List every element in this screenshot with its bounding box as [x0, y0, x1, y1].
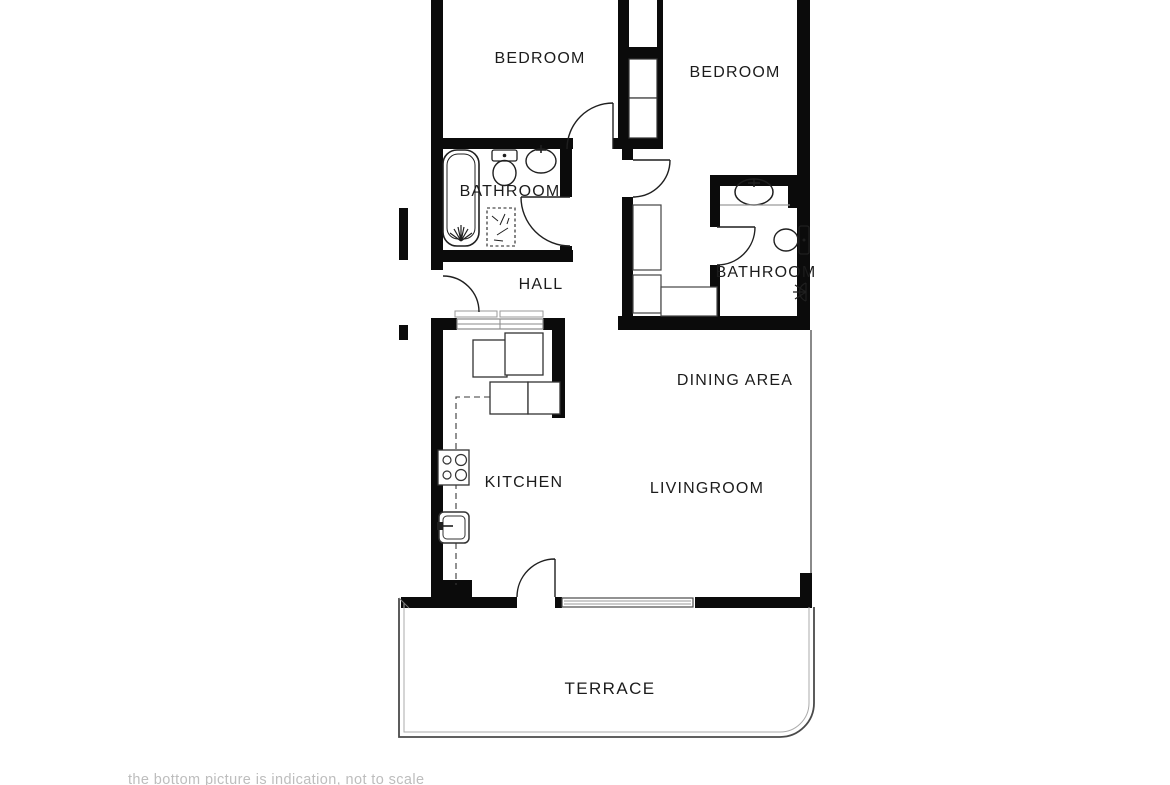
wall-bottom-kitchen — [401, 597, 517, 608]
hall-sill-left — [455, 311, 497, 317]
wall-outside-stub-1 — [399, 208, 408, 260]
kitchen-sink-inner — [443, 516, 465, 539]
floor-plan-screenshot: BEDROOM BEDROOM BATHROOM HALL BATHROOM D… — [0, 0, 1170, 785]
sliding-window-cap — [555, 597, 562, 608]
closet-box-3 — [661, 287, 717, 316]
wall-outside-stub-2 — [399, 325, 408, 340]
label-bathroom-main: BATHROOM — [460, 183, 561, 200]
kitchen-appliance-1 — [473, 340, 507, 377]
floor-plan-drawing: BEDROOM BEDROOM BATHROOM HALL BATHROOM D… — [0, 0, 1170, 785]
wall-bathroom1-bottom — [431, 250, 573, 262]
kitchen-appliance-2 — [505, 333, 543, 375]
wall-living-step — [800, 573, 812, 597]
window-cap-left — [453, 319, 457, 329]
wall-bathroom2-left-upper — [710, 175, 720, 227]
wall-bathroom2-top — [710, 175, 807, 186]
background — [0, 0, 1170, 785]
hall-sill-right — [500, 311, 543, 317]
label-hall: HALL — [519, 276, 564, 293]
wall-bedroom1-bathroom — [431, 138, 573, 149]
wall-bathroom1-right-upper — [560, 149, 572, 197]
wall-left-upper — [431, 0, 443, 270]
sliding-window — [562, 598, 693, 607]
label-bedroom-right: BEDROOM — [689, 64, 780, 81]
closet-box-1 — [633, 205, 661, 270]
wardrobe-shelf-1 — [629, 59, 657, 98]
toilet2-button — [803, 239, 806, 242]
wall-hall-closet-stub — [622, 149, 633, 160]
wardrobe-shelf-bar — [629, 47, 657, 59]
wall-wardrobe-left — [618, 0, 629, 149]
toilet-button — [503, 154, 507, 158]
closet-box-2 — [633, 275, 661, 313]
wall-dining-top — [618, 316, 810, 330]
wall-bottom-living — [695, 597, 812, 608]
label-bathroom-second: BATHROOM — [716, 264, 817, 281]
plan-disclaimer-caption: the bottom picture is indication, not to… — [128, 772, 424, 785]
kitchen-counter-1 — [490, 382, 528, 414]
wall-hall-closet-lower — [622, 197, 633, 318]
wall-kitchen-pier — [432, 580, 472, 597]
kitchen-counter-2 — [528, 382, 560, 414]
wardrobe-shelves — [629, 59, 657, 138]
label-kitchen: KITCHEN — [485, 474, 564, 491]
label-terrace: TERRACE — [564, 679, 655, 698]
label-dining-area: DINING AREA — [677, 372, 793, 389]
wall-wardrobe-right — [657, 0, 663, 138]
kitchen-tap-icon — [437, 522, 443, 530]
label-living-room: LIVINGROOM — [650, 480, 764, 497]
wardrobe-shelf-2 — [629, 98, 657, 138]
label-bedroom-left: BEDROOM — [494, 50, 585, 67]
